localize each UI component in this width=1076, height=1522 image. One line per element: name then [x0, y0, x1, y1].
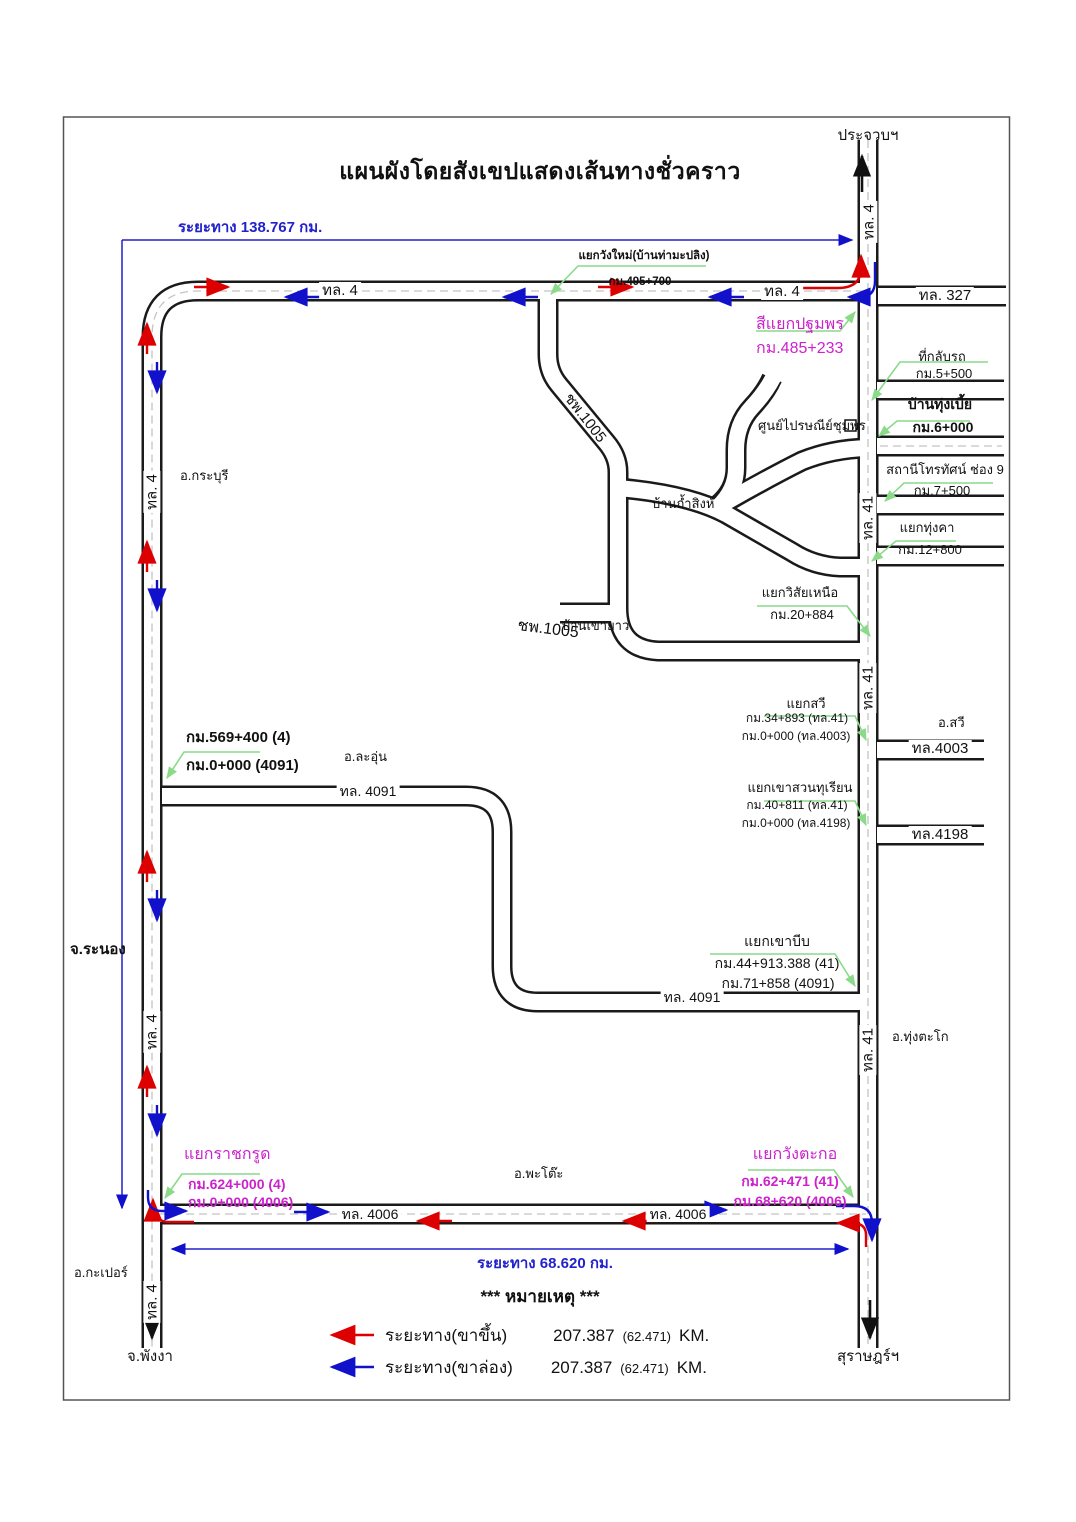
place-ban-tham-sing: บ้านถ้ำสิงห์ — [652, 497, 714, 512]
junction-ratchakrut-km1: กม.624+000 (4) — [188, 1176, 286, 1192]
road-label-hw4-west-1: ทล. 4 — [143, 471, 160, 513]
road-label-hw4198: ทล.4198 — [909, 826, 972, 843]
area-phato: อ.พะโต๊ะ — [514, 1167, 563, 1182]
road-label-hw4091-east: ทล. 4091 — [661, 989, 724, 1005]
junction-wangmai-name: แยกวังใหม่(บ้านท่ามะปลิง) — [579, 250, 710, 263]
junction-uturn-km: กม.5+500 — [916, 367, 973, 382]
legend-down-alt: (62.471) — [620, 1361, 668, 1376]
junction-wangmai-km: กม.495+700 — [609, 276, 672, 289]
legend-arrows — [332, 1335, 374, 1367]
road-label-hw4006-west: ทล. 4006 — [339, 1206, 402, 1222]
junction-sawi-km2: กม.0+000 (ทล.4003) — [742, 730, 851, 744]
area-thung-tako: อ.ทุ่งตะโก — [892, 1030, 949, 1045]
area-ranong: จ.ระนอง — [70, 941, 126, 958]
junction-khaosuan-km2: กม.0+000 (ทล.4198) — [742, 817, 851, 831]
junction-sawi-name: แยกสวี — [786, 697, 825, 712]
junction-km569-km1: กม.569+400 (4) — [186, 729, 290, 746]
junction-wangtako-km1: กม.62+471 (41) — [741, 1173, 839, 1189]
place-chumphon-post: ศูนย์ไปรษณีย์ชุมพร — [758, 419, 866, 434]
blue-route-arrows — [148, 262, 875, 1240]
junction-tv9-name: สถานีโทรทัศน์ ช่อง 9 — [886, 463, 1004, 478]
road-label-hw4091-west: ทล. 4091 — [337, 783, 400, 799]
legend-down-value: 207.387 — [551, 1358, 612, 1378]
destination-phangnga: จ.พังงา — [127, 1348, 173, 1365]
distance-top-label: ระยะทาง 138.767 กม. — [178, 219, 322, 236]
road-label-hw4003: ทล.4003 — [909, 740, 972, 757]
destination-surat: สุราษฎร์ฯ — [837, 1348, 899, 1365]
junction-khaobip-km2: กม.71+858 (4091) — [721, 975, 834, 991]
junction-khaobip-name: แยกเขาบีบ — [744, 933, 810, 949]
road-label-hw41-2: ทล. 41 — [859, 663, 876, 713]
distance-bottom-label: ระยะทาง 68.620 กม. — [477, 1255, 613, 1272]
legend-up-label: ระยะทาง(ขาขึ้น) — [385, 1322, 507, 1349]
junction-ratchakrut-name: แยกราชกรูด — [184, 1146, 270, 1164]
legend-row-up: ระยะทาง(ขาขึ้น) 207.387 (62.471) KM. — [385, 1322, 709, 1349]
junction-ratchakrut-km2: กม.0+000 (4006) — [188, 1194, 293, 1210]
road-label-hw41-1: ทล. 41 — [859, 493, 876, 543]
road-label-hw4006-east: ทล. 4006 — [647, 1206, 710, 1222]
junction-thungkha-name: แยกทุ่งคา — [900, 521, 955, 536]
junction-wangtako-km2: กม.68+620 (4006) — [733, 1193, 846, 1209]
road-label-hw4-top-left: ทล. 4 — [319, 282, 361, 299]
road-label-hw327: ทล. 327 — [916, 287, 974, 304]
area-kapoe: อ.กะเปอร์ — [74, 1266, 128, 1281]
road-label-hw4-top-right: ทล. 4 — [761, 283, 803, 300]
legend-header: *** หมายเหตุ *** — [480, 1287, 599, 1307]
junction-thungbia-km: กม.6+000 — [913, 419, 974, 435]
road-label-hw4-west-2: ทล. 4 — [143, 1011, 160, 1053]
junction-khaobip-km1: กม.44+913.388 (41) — [715, 955, 840, 971]
road-label-hw41-3: ทล. 41 — [859, 1025, 876, 1075]
road-label-hw4-west-3: ทล. 4 — [143, 1281, 160, 1323]
area-la-un: อ.ละอุ่น — [344, 750, 387, 765]
legend-up-unit: KM. — [679, 1326, 709, 1346]
junction-thungkha-km: กม.12+800 — [898, 543, 962, 558]
legend-up-alt: (62.471) — [623, 1329, 671, 1344]
detour-map-page: แผนผังโดยสังเขปแสดงเส้นทางชั่วคราว ระยะท… — [0, 0, 1076, 1522]
junction-khaosuan-km1: กม.40+811 (ทล.41) — [746, 799, 847, 813]
junction-pathomphon-name: สีแยกปฐมพร — [756, 316, 844, 334]
junction-km569-km2: กม.0+000 (4091) — [186, 757, 299, 774]
road-label-hw4-north: ทล. 4 — [860, 201, 877, 243]
junction-tv9-km: กม.7+500 — [914, 484, 971, 499]
junction-pathomphon-km: กม.485+233 — [756, 340, 843, 358]
page-title: แผนผังโดยสังเขปแสดงเส้นทางชั่วคราว — [339, 158, 741, 184]
legend-down-label: ระยะทาง(ขาล่อง) — [385, 1354, 513, 1381]
junction-sawi-km1: กม.34+893 (ทล.41) — [746, 712, 848, 726]
destination-prachuap: ประจวบฯ — [838, 127, 899, 144]
legend-row-down: ระยะทาง(ขาล่อง) 207.387 (62.471) KM. — [385, 1354, 707, 1381]
junction-wisai-km: กม.20+884 — [770, 608, 834, 623]
area-kraburi: อ.กระบุรี — [180, 469, 229, 484]
legend-up-value: 207.387 — [553, 1326, 614, 1346]
junction-wisai-name: แยกวิสัยเหนือ — [762, 586, 838, 601]
junction-wangtako-name: แยกวังตะกอ — [753, 1146, 837, 1164]
area-sawi: อ.สวี — [938, 716, 965, 731]
junction-khaosuan-name: แยกเขาสวนทุเรียน — [747, 781, 852, 796]
junction-thungbia-name: บ้านทุ่งเบี้ย — [908, 396, 972, 412]
legend-down-unit: KM. — [677, 1358, 707, 1378]
junction-uturn-name: ที่กลับรถ — [918, 350, 966, 365]
